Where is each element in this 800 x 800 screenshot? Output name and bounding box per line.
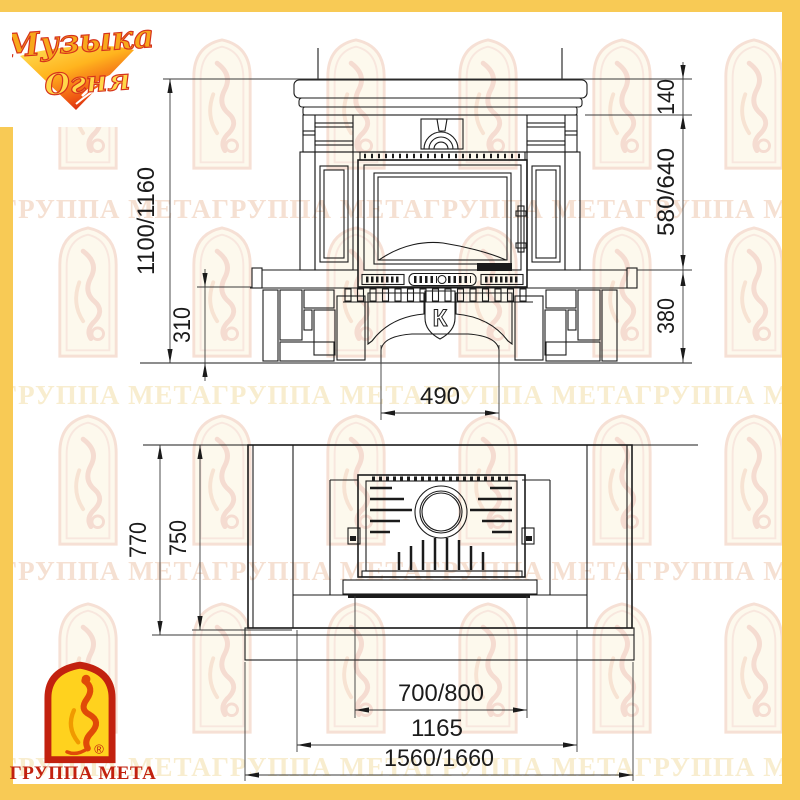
stone-pattern-right [515, 290, 617, 361]
svg-text:1165: 1165 [411, 715, 463, 742]
firebox-plan [343, 475, 537, 596]
company-name: ГРУППА МЕТА [8, 763, 158, 785]
svg-text:1100/1160: 1100/1160 [133, 167, 160, 275]
dim-firebox-width: 700/800 [355, 596, 527, 718]
svg-text:580/640: 580/640 [653, 148, 680, 236]
damper-plate [477, 263, 512, 271]
svg-text:140: 140 [653, 79, 680, 115]
front-view: К 1100/1160 310 140 580/6 [133, 48, 692, 420]
svg-text:700/800: 700/800 [398, 680, 484, 707]
svg-text:490: 490 [420, 383, 460, 410]
flue-collar [415, 486, 467, 538]
registered-mark: ® [94, 742, 104, 757]
dim-right-column: 140 580/640 380 [585, 62, 692, 363]
gruppa-meta-logo: ® [30, 660, 130, 764]
dim-depth-inner: 750 [165, 445, 292, 630]
svg-text:770: 770 [125, 522, 152, 558]
plan-view: 770 750 700/800 1165 156 [125, 445, 698, 781]
logo-word-2: Огня [43, 62, 131, 102]
k-emblem-letter: К [433, 305, 448, 332]
logo-word-1: Музыка [12, 17, 152, 65]
muzyka-ognya-logo: Музыка Огня [12, 16, 152, 116]
svg-text:750: 750 [165, 520, 192, 556]
svg-text:380: 380 [653, 298, 680, 334]
svg-text:1560/1660: 1560/1660 [384, 745, 494, 772]
chimney-lines [318, 48, 562, 79]
svg-text:310: 310 [169, 307, 196, 343]
firebox-front [358, 160, 527, 287]
fan-emblem [421, 119, 463, 149]
dim-plinth-height: 310 [169, 269, 252, 381]
dim-arch-opening: 490 [381, 345, 499, 420]
base-arch-opening [381, 334, 499, 362]
glass-wave [379, 242, 506, 260]
